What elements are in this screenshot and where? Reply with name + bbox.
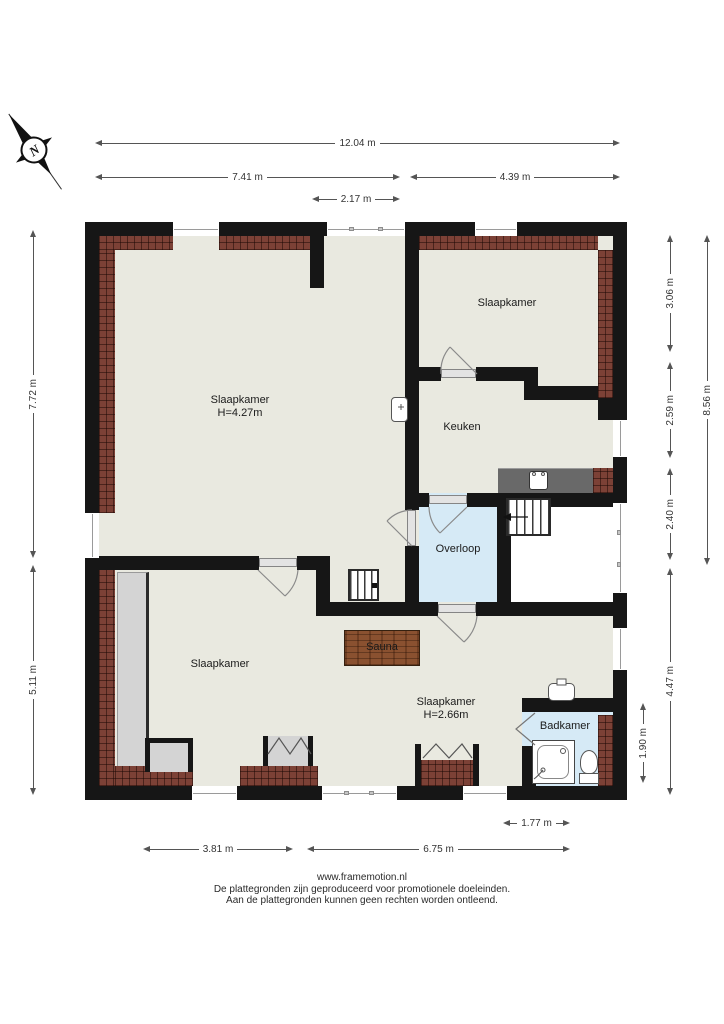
stairs-direction-arrow	[503, 513, 528, 521]
dimension-top-total: 12.04 m	[95, 137, 620, 149]
wastafel-tap	[398, 404, 404, 410]
dimension-right-856: 8.56 m	[701, 235, 713, 565]
shower-details	[534, 749, 566, 780]
badkamer-sink-faucet	[557, 679, 566, 685]
room-label-slaapkamer-bottomright: SlaapkamerH=2.66m	[417, 696, 476, 722]
dimension-left-upper: 7.72 m	[27, 230, 39, 558]
footer-website: www.framemotion.nl	[0, 872, 724, 884]
room-label-slaapkamer-left: SlaapkamerH=4.27m	[211, 394, 270, 420]
compass-icon: N	[0, 101, 80, 202]
room-label-overloop: Overloop	[436, 543, 481, 556]
dimension-bottom-381: 3.81 m	[143, 843, 293, 855]
dimension-top-small: 2.17 m	[312, 193, 400, 205]
badkamer-door	[516, 713, 535, 745]
floorplan-page: N SlaapkamerH=4.27m Slaa	[0, 0, 724, 1024]
dimension-right-447: 4.47 m	[664, 568, 676, 795]
footer-disclaimer-1: De plattegronden zijn geproduceerd voor …	[0, 884, 724, 896]
plan-detail-overlay: N	[0, 0, 724, 1024]
room-label-sauna: Sauna	[366, 641, 398, 654]
dimension-top-right: 4.39 m	[410, 171, 620, 183]
room-label-slaapkamer-bottomleft: Slaapkamer	[191, 658, 250, 671]
room-label-badkamer: Badkamer	[540, 720, 590, 733]
folding-door-right-closet	[423, 744, 472, 758]
room-label-keuken: Keuken	[443, 421, 480, 434]
dimension-left-lower: 5.11 m	[27, 565, 39, 795]
dimension-bottom-177: 1.77 m	[503, 817, 570, 829]
dimension-right-259: 2.59 m	[664, 362, 676, 458]
room-label-slaapkamer-topright: Slaapkamer	[478, 297, 537, 310]
dimension-right-240: 2.40 m	[664, 468, 676, 560]
door-arcs	[258, 347, 477, 642]
folding-door-left-closet	[268, 738, 311, 754]
dimension-right-190: 1.90 m	[637, 703, 649, 783]
dimension-bottom-675: 6.75 m	[307, 843, 570, 855]
footer-disclaimer-2: Aan de plattegronden kunnen geen rechten…	[0, 895, 724, 907]
dimension-top-left: 7.41 m	[95, 171, 400, 183]
dimension-right-306: 3.06 m	[664, 235, 676, 352]
footer: www.framemotion.nl De plattegronden zijn…	[0, 872, 724, 907]
stairs-newel-mark	[372, 583, 377, 588]
kitchen-sink-taps	[533, 473, 545, 476]
